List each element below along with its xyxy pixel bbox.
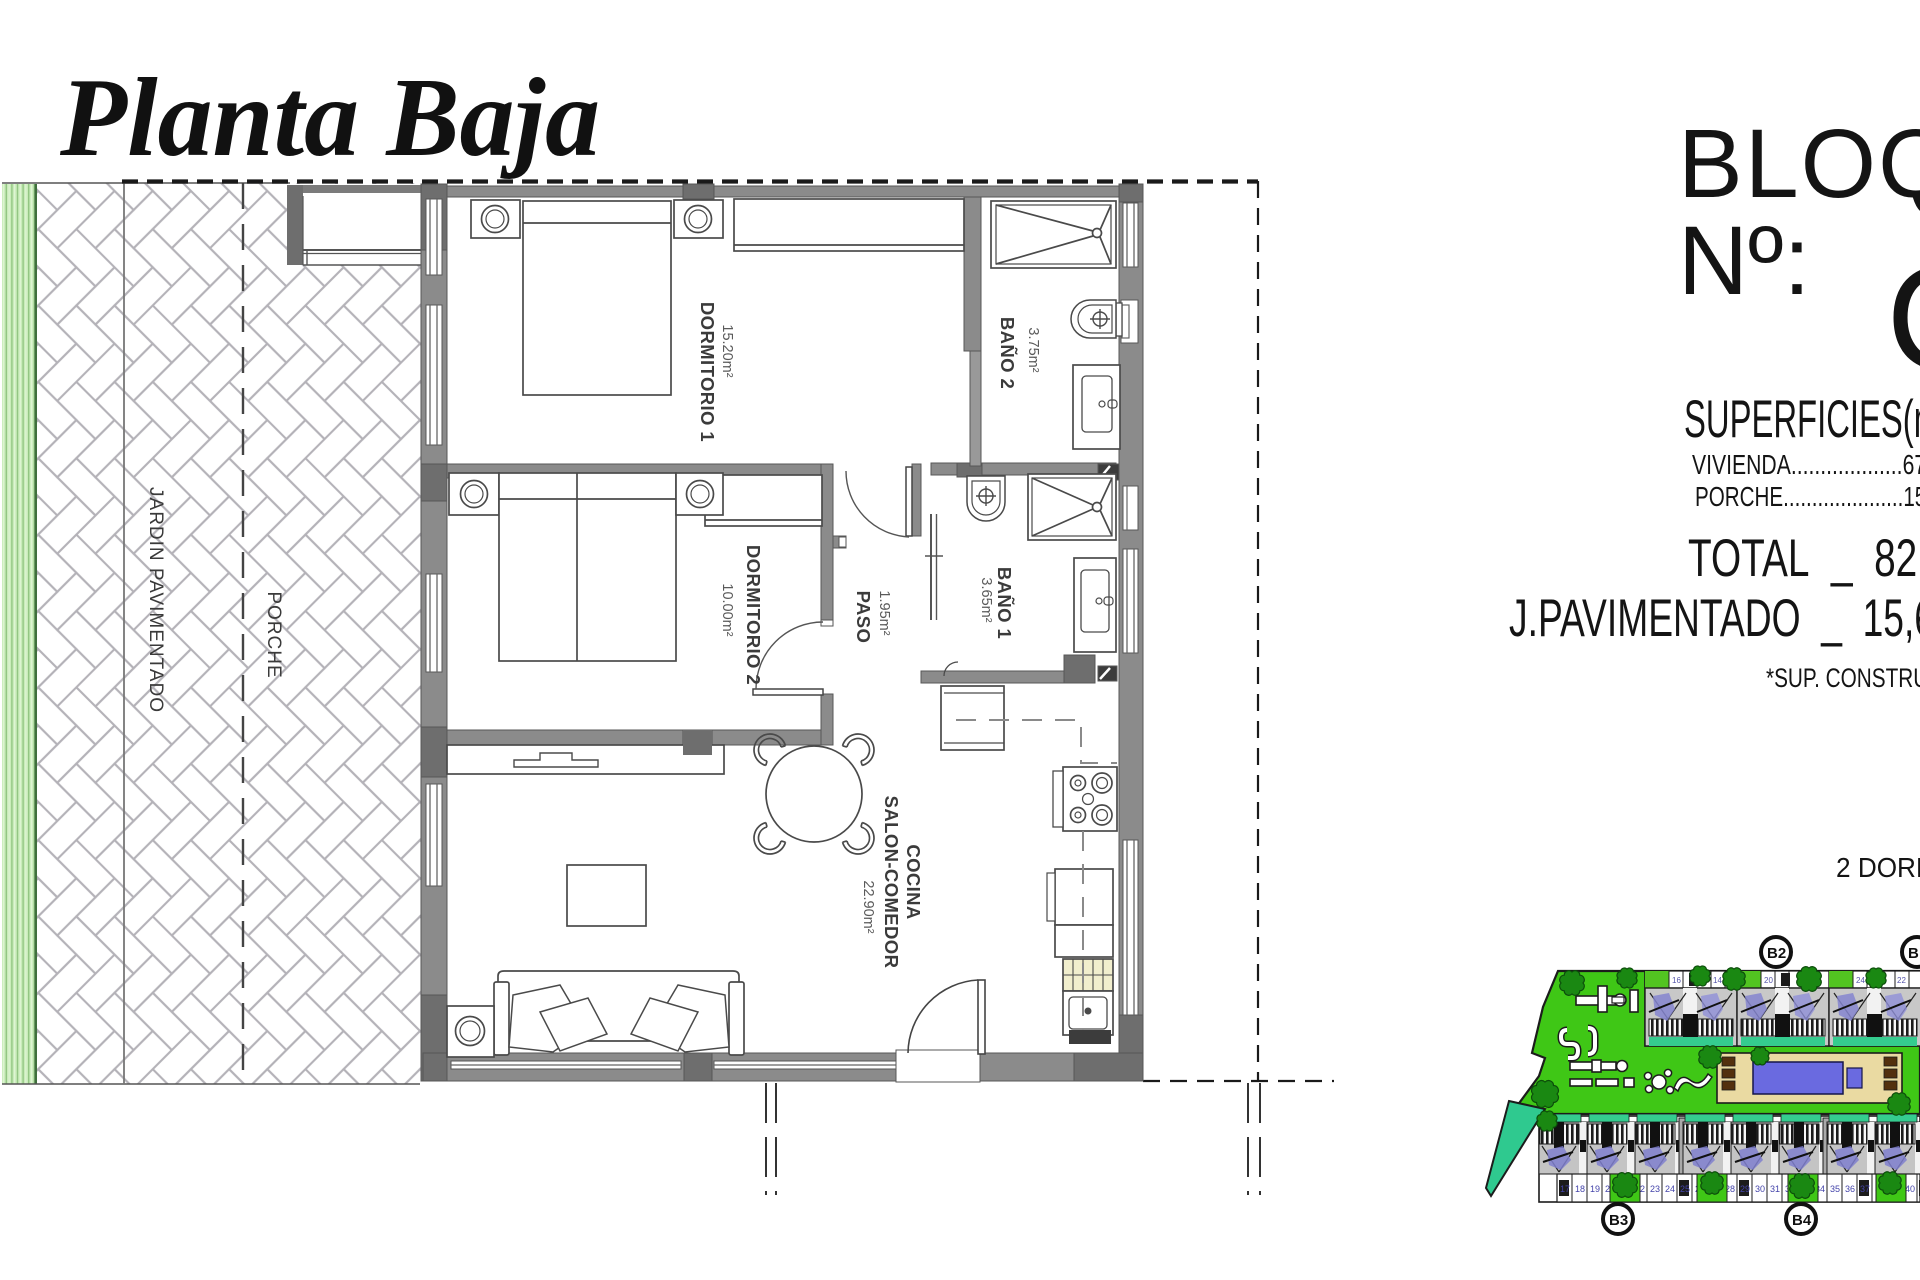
svg-text:SALON-COMEDOR: SALON-COMEDOR xyxy=(881,796,902,969)
svg-text:16: 16 xyxy=(1672,976,1681,985)
svg-text:36: 36 xyxy=(1845,1184,1855,1194)
svg-text:14: 14 xyxy=(1713,976,1722,985)
svg-text:40: 40 xyxy=(1905,1184,1915,1194)
svg-text:Planta Baja: Planta Baja xyxy=(59,56,600,180)
svg-text:18: 18 xyxy=(1575,1184,1585,1194)
svg-text:19: 19 xyxy=(1590,1184,1600,1194)
svg-text:COCINA: COCINA xyxy=(903,844,924,919)
svg-text:31: 31 xyxy=(1770,1184,1780,1194)
svg-text:3.65m²: 3.65m² xyxy=(978,577,994,622)
svg-text:Nº:: Nº: xyxy=(1678,206,1810,315)
svg-text:20: 20 xyxy=(1764,976,1773,985)
svg-text:23: 23 xyxy=(1650,1184,1660,1194)
svg-text:TOTAL _ 82,: TOTAL _ 82, xyxy=(1688,529,1920,588)
svg-text:VIVIENDA...................67,: VIVIENDA...................67, xyxy=(1692,449,1920,480)
svg-text:SUPERFICIES(m²: SUPERFICIES(m² xyxy=(1684,390,1920,449)
svg-text:BAÑO 1: BAÑO 1 xyxy=(994,567,1015,639)
svg-text:25: 25 xyxy=(1680,1184,1690,1194)
svg-text:*SUP. CONSTRUI: *SUP. CONSTRUI xyxy=(1766,663,1920,693)
svg-text:17: 17 xyxy=(1560,1184,1570,1194)
svg-text:24: 24 xyxy=(1856,976,1865,985)
svg-text:DORMITORIO 1: DORMITORIO 1 xyxy=(697,302,718,442)
svg-text:B2: B2 xyxy=(1767,945,1786,962)
svg-text:37: 37 xyxy=(1860,1184,1870,1194)
svg-text:2 DORMIT: 2 DORMIT xyxy=(1836,852,1920,883)
svg-text:24: 24 xyxy=(1665,1184,1675,1194)
svg-text:PORCHE.....................15,: PORCHE.....................15, xyxy=(1695,481,1920,512)
svg-text:3.75m²: 3.75m² xyxy=(1025,327,1041,372)
svg-text:B: B xyxy=(1908,945,1919,962)
svg-text:B3: B3 xyxy=(1609,1212,1628,1229)
svg-text:BLOQ.: BLOQ. xyxy=(1678,109,1920,218)
svg-text:22: 22 xyxy=(1897,976,1906,985)
svg-text:B4: B4 xyxy=(1792,1212,1812,1229)
svg-text:JARDIN PAVIMENTADO: JARDIN PAVIMENTADO xyxy=(145,487,166,713)
svg-text:PORCHE: PORCHE xyxy=(263,591,284,678)
svg-text:29: 29 xyxy=(1740,1184,1750,1194)
svg-text:35: 35 xyxy=(1830,1184,1840,1194)
svg-text:BAÑO 2: BAÑO 2 xyxy=(997,317,1018,389)
svg-text:10.00m²: 10.00m² xyxy=(719,583,735,636)
svg-text:PASO: PASO xyxy=(853,591,874,644)
svg-text:DORMITORIO 2: DORMITORIO 2 xyxy=(743,545,764,685)
svg-text:C: C xyxy=(1886,236,1920,401)
svg-text:30: 30 xyxy=(1755,1184,1765,1194)
svg-text:15.20m²: 15.20m² xyxy=(719,324,735,377)
svg-text:J.PAVIMENTADO _ 15,6: J.PAVIMENTADO _ 15,6 xyxy=(1509,589,1920,648)
svg-text:22.90m²: 22.90m² xyxy=(860,880,876,933)
svg-text:1.95m²: 1.95m² xyxy=(876,590,892,635)
